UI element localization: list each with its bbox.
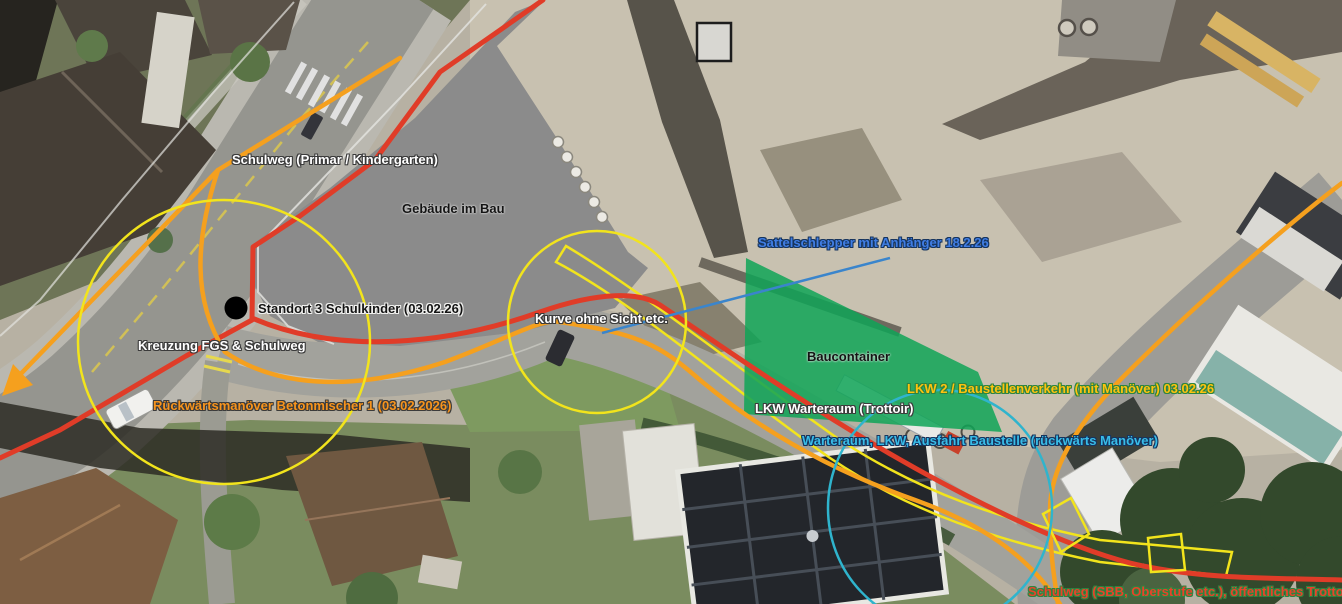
label-schulweg-primar: Schulweg (Primar / Kindergarten) <box>232 153 438 167</box>
label-gebaeude-im-bau: Gebäude im Bau <box>402 202 505 216</box>
map-graphics <box>0 0 1342 604</box>
label-standort-schulkinder: Standort 3 Schulkinder (03.02.26) <box>258 302 463 316</box>
label-baucontainer: Baucontainer <box>807 350 890 364</box>
label-lkw2-baustellenverkehr: LKW 2 / Baustellenverkehr (mit Manöver) … <box>907 382 1214 396</box>
label-kreuzung-fgs: Kreuzung FGS & Schulweg <box>138 339 306 353</box>
label-sattelschlepper: Sattelschlepper mit Anhänger 18.2.26 <box>758 236 989 250</box>
aerial-site-plan: Schulweg (Primar / Kindergarten) Gebäude… <box>0 0 1342 604</box>
standort-marker-dot <box>225 297 248 320</box>
label-lkw-warteraum: LKW Warteraum (Trottoir) <box>755 402 913 416</box>
label-warteraum-ausfahrt: Warteraum, LKW, Ausfahrt Baustelle (rück… <box>802 434 1158 448</box>
label-rueckwaertsmanoever: Rückwärtsmanöver Betonmischer 1 (03.02.2… <box>153 399 451 413</box>
label-schulweg-sbb: Schulweg (SBB, Oberstufe etc.), öffentli… <box>1028 585 1342 599</box>
label-kurve-ohne-sicht: Kurve ohne Sicht etc. <box>535 312 668 326</box>
